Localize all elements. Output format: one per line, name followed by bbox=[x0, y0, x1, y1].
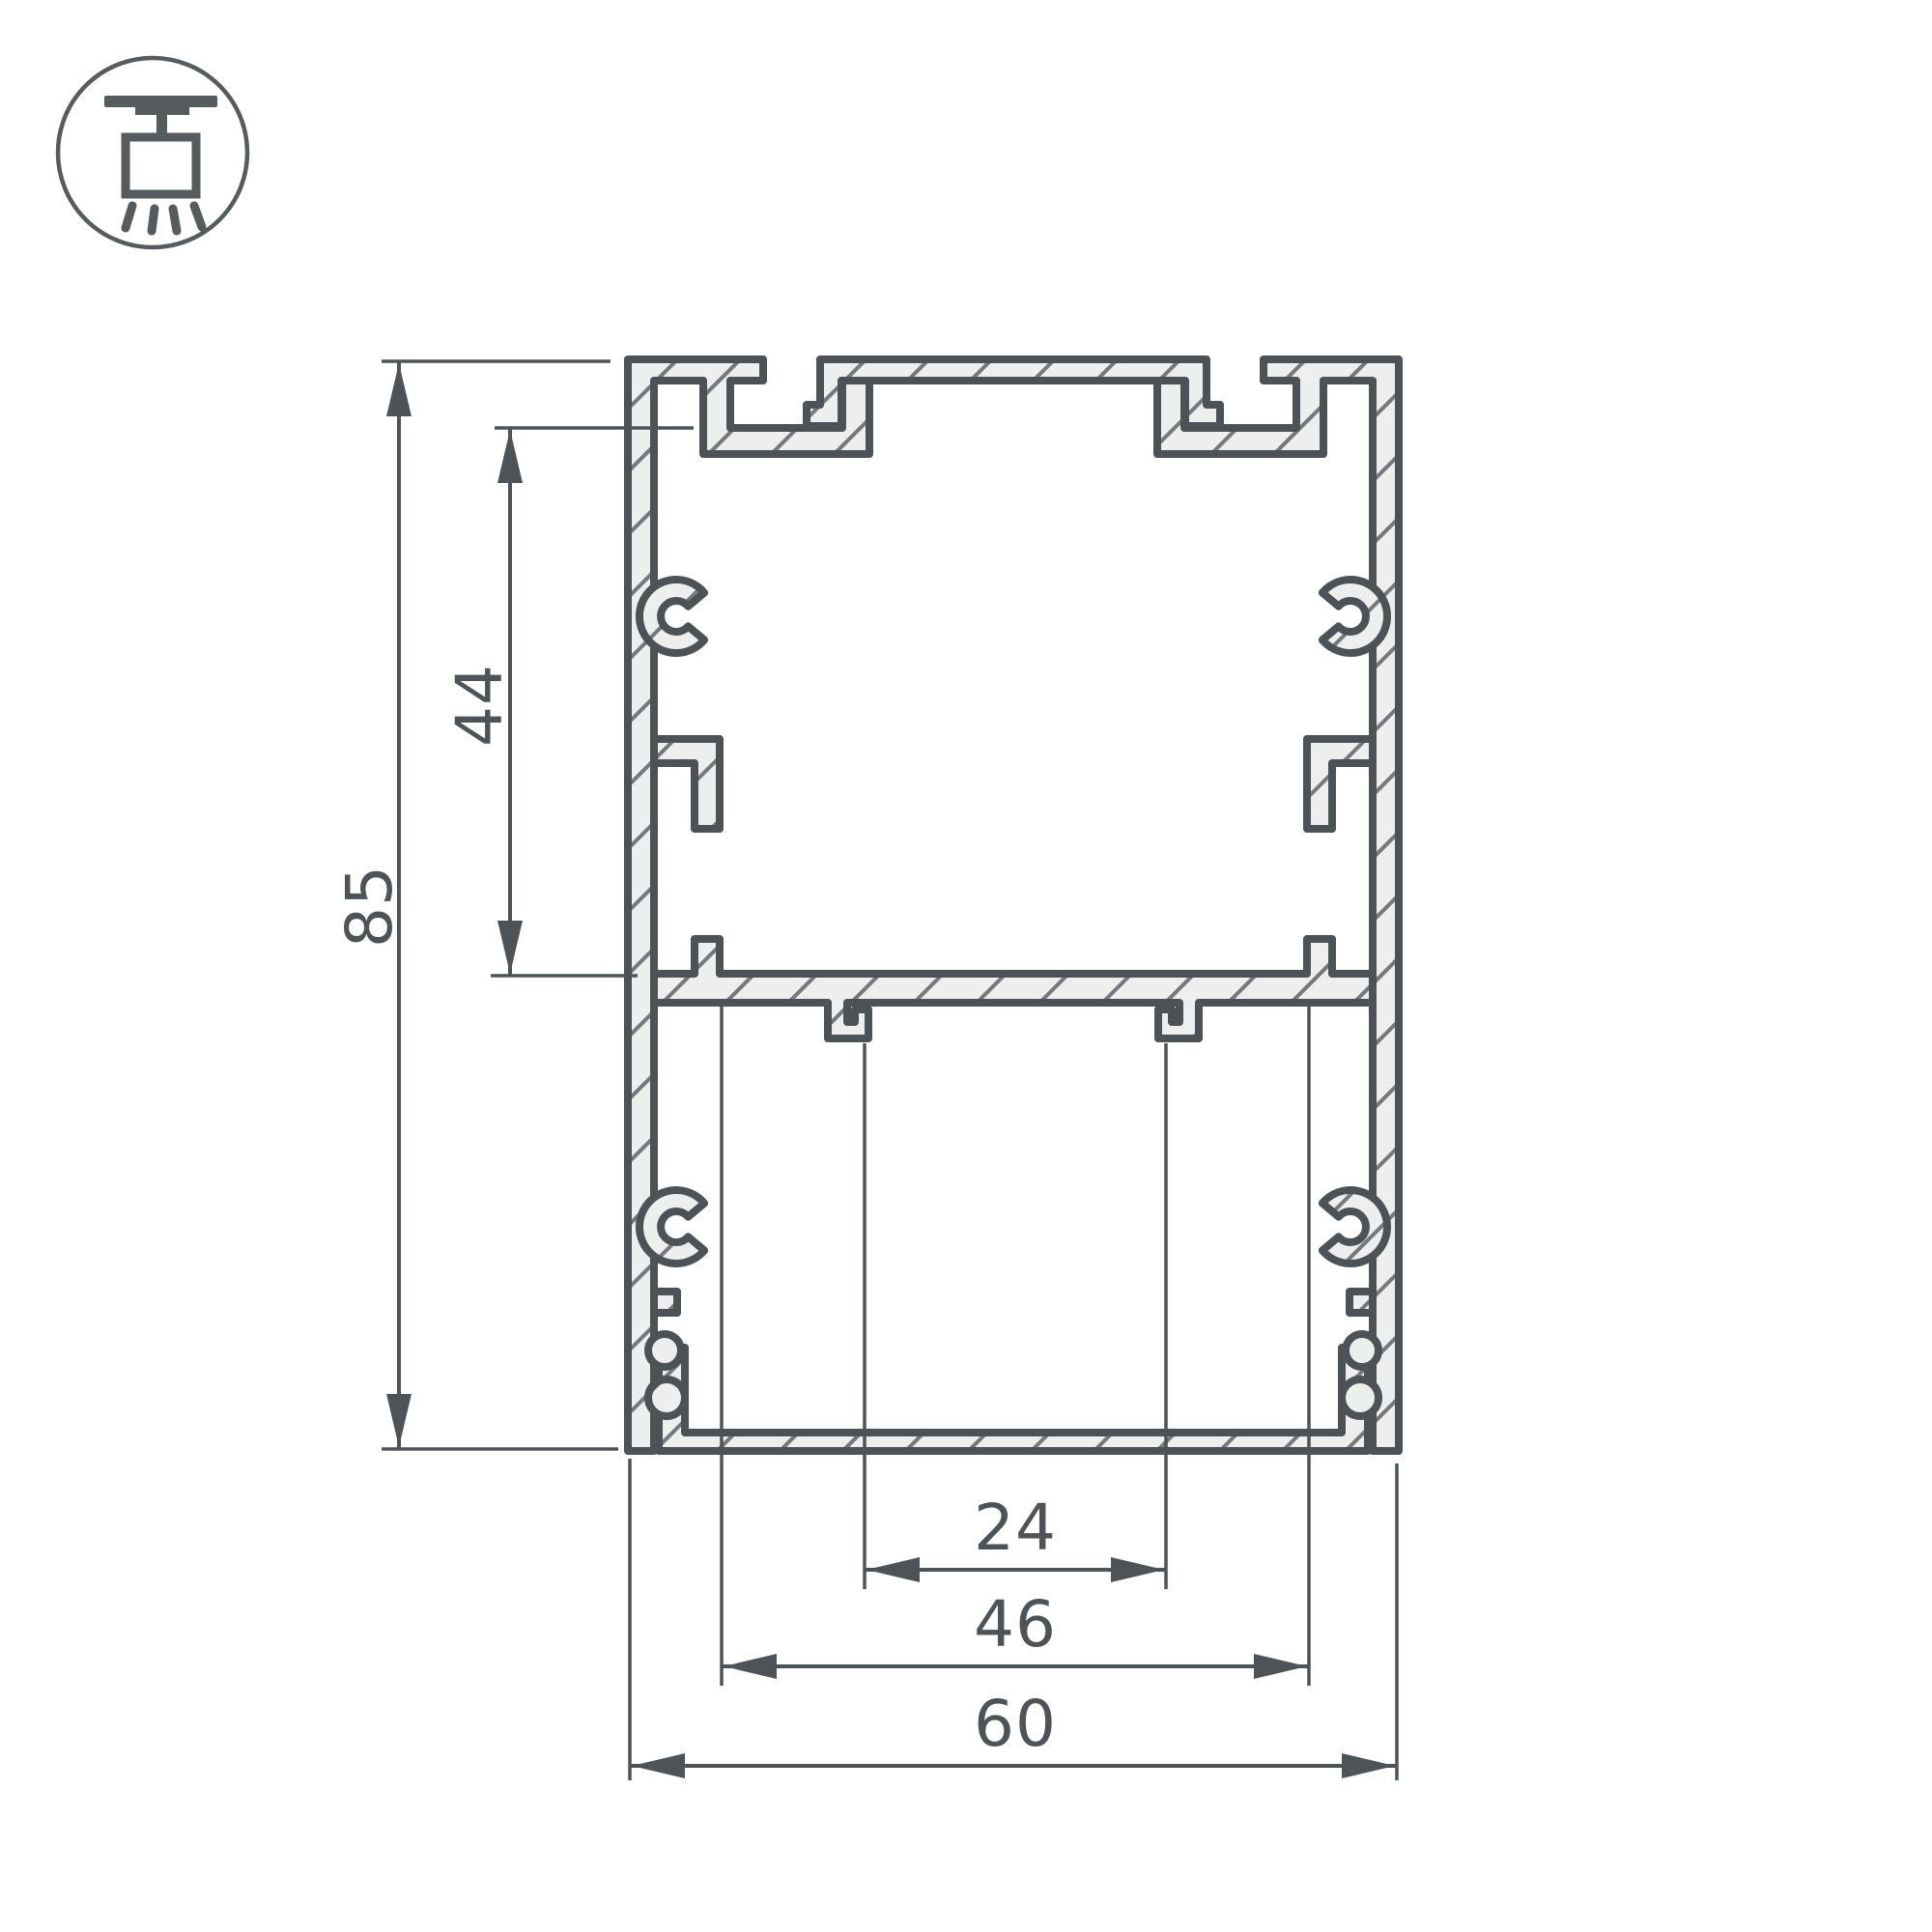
dimension-24-label: 24 bbox=[974, 1491, 1057, 1565]
right-clip-features bbox=[1342, 1292, 1378, 1416]
ceiling-bar bbox=[104, 96, 217, 107]
dimension-60-label: 60 bbox=[974, 1687, 1057, 1761]
dimension-85-label: 85 bbox=[332, 865, 407, 948]
profile-cross-section-drawing: 85 44 24 46 bbox=[0, 0, 1932, 1932]
dimension-46-label: 46 bbox=[974, 1587, 1057, 1662]
technical-drawing-page: 85 44 24 46 bbox=[0, 0, 1932, 1932]
dimension-44-label: 44 bbox=[442, 664, 517, 747]
background bbox=[0, 0, 1932, 1932]
left-clip-features bbox=[648, 1292, 685, 1416]
